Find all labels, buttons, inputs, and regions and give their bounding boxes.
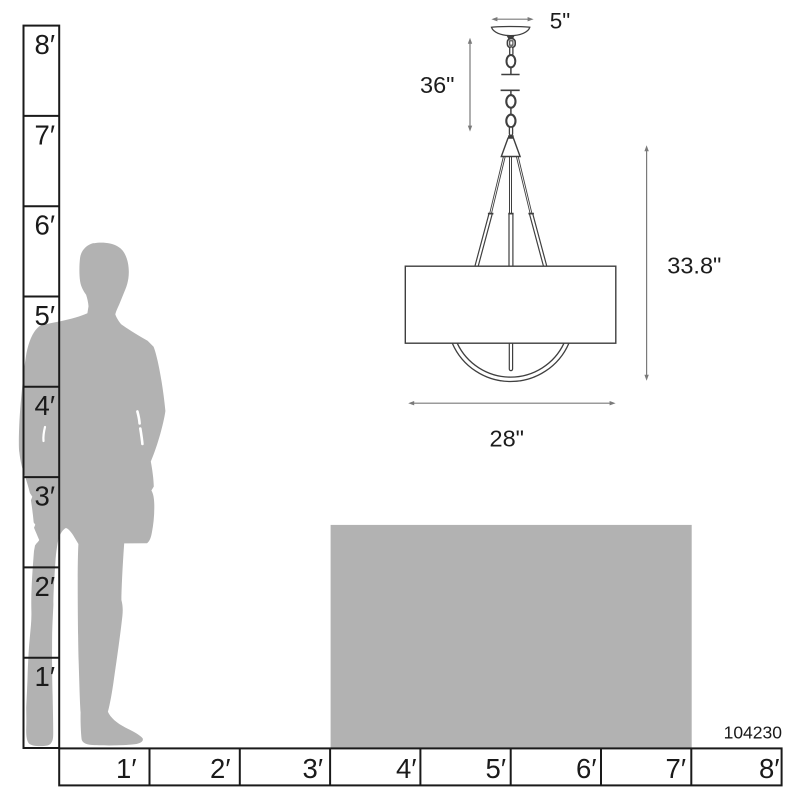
svg-text:8′: 8′ — [35, 29, 55, 60]
svg-text:8′: 8′ — [759, 753, 779, 784]
svg-text:4′: 4′ — [396, 753, 416, 784]
svg-text:6′: 6′ — [35, 210, 55, 241]
svg-text:7′: 7′ — [35, 119, 55, 150]
svg-text:104230: 104230 — [724, 723, 783, 743]
svg-text:36": 36" — [420, 72, 454, 98]
svg-text:5′: 5′ — [35, 300, 55, 331]
svg-text:3′: 3′ — [303, 753, 323, 784]
svg-text:2′: 2′ — [35, 571, 55, 602]
svg-text:7′: 7′ — [666, 753, 686, 784]
svg-text:2′: 2′ — [210, 753, 230, 784]
svg-text:28": 28" — [490, 425, 524, 451]
svg-text:5′: 5′ — [486, 753, 506, 784]
svg-text:3′: 3′ — [35, 481, 55, 512]
svg-text:1′: 1′ — [35, 661, 55, 692]
svg-text:1′: 1′ — [116, 753, 136, 784]
svg-text:6′: 6′ — [576, 753, 596, 784]
svg-text:33.8": 33.8" — [667, 253, 721, 279]
svg-text:4′: 4′ — [35, 390, 55, 421]
svg-text:5": 5" — [550, 8, 571, 33]
